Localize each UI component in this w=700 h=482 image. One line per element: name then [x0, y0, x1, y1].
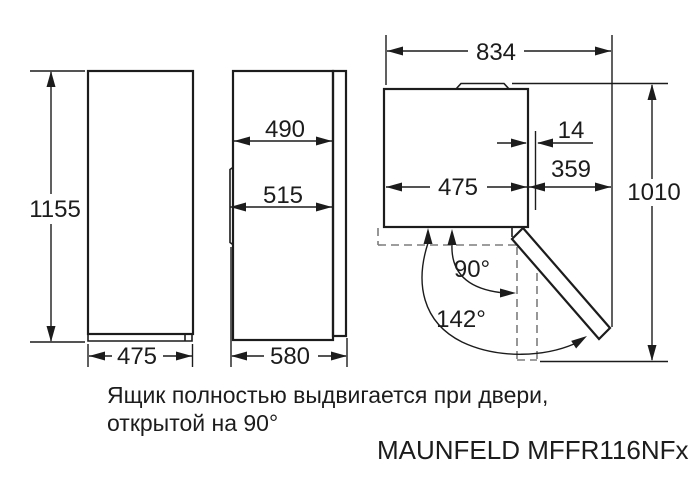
arrowhead — [511, 139, 527, 148]
arrowhead — [387, 47, 403, 56]
fridge-front-outline — [88, 71, 193, 334]
door-open-142 — [512, 228, 610, 339]
arrowhead — [529, 183, 545, 192]
dimension-door-swing-359: 359 — [529, 156, 611, 192]
arrowhead — [316, 203, 332, 212]
dimension-depth-515: 515 — [230, 182, 332, 212]
front-view: 1155 475 — [29, 71, 193, 370]
dim-depth-580-label: 580 — [270, 343, 310, 370]
caption: Ящик полностью выдвигается при двери, от… — [107, 382, 689, 465]
arrowhead — [448, 229, 457, 245]
arrowhead — [648, 84, 657, 100]
dimension-front-width-475: 475 — [88, 343, 193, 370]
arrowhead — [331, 352, 347, 361]
arrowhead — [231, 352, 247, 361]
arrowhead — [47, 326, 56, 342]
dim-depth-515-label: 515 — [263, 182, 303, 209]
dimension-diagram: 1155 475 490 515 — [0, 0, 700, 482]
arrowhead — [386, 183, 402, 192]
arrowhead — [424, 228, 433, 244]
dim-width-834-label: 834 — [476, 39, 516, 66]
dimension-drawing-page: 1155 475 490 515 — [0, 0, 700, 482]
swing-arc-90: 90° — [448, 229, 517, 298]
arrowhead — [537, 139, 553, 148]
angle-90-label: 90° — [454, 256, 490, 283]
dimension-depth-490: 490 — [234, 116, 332, 146]
arrowhead — [89, 352, 105, 361]
dimension-depth-580: 580 — [231, 247, 347, 370]
dim-door-offset-14-label: 14 — [558, 117, 585, 144]
arrowhead — [176, 352, 192, 361]
dim-depth-1010-label: 1010 — [627, 179, 680, 206]
arrowhead — [511, 183, 527, 192]
arrowhead — [500, 289, 516, 298]
arrowhead — [595, 183, 611, 192]
fridge-top-outline — [384, 89, 528, 227]
side-view: 490 515 580 — [230, 71, 347, 370]
dim-front-width-label: 475 — [117, 343, 157, 370]
note-line-1: Ящик полностью выдвигается при двери, — [107, 382, 548, 408]
dimension-body-width-475: 475 — [386, 174, 527, 201]
angle-142-label: 142° — [436, 306, 486, 333]
model-name: MAUNFELD MFFR116NFx — [377, 435, 689, 465]
arrowhead — [47, 71, 56, 87]
arrowhead — [571, 336, 587, 349]
dim-depth-490-label: 490 — [265, 116, 305, 143]
dim-body-width-475-label: 475 — [438, 174, 478, 201]
door-closed-dashed — [378, 228, 516, 245]
top-view: 90° 142° 834 1010 — [378, 35, 681, 362]
fridge-side-back-panel — [333, 71, 346, 336]
note-line-2: открытой на 90° — [107, 410, 278, 436]
dim-height-label: 1155 — [29, 196, 81, 223]
dimension-height-1155: 1155 — [29, 71, 85, 342]
arrowhead — [234, 137, 250, 146]
arrowhead — [316, 137, 332, 146]
arrowhead — [648, 345, 657, 361]
dim-door-swing-359-label: 359 — [551, 156, 591, 183]
arrowhead — [595, 47, 611, 56]
